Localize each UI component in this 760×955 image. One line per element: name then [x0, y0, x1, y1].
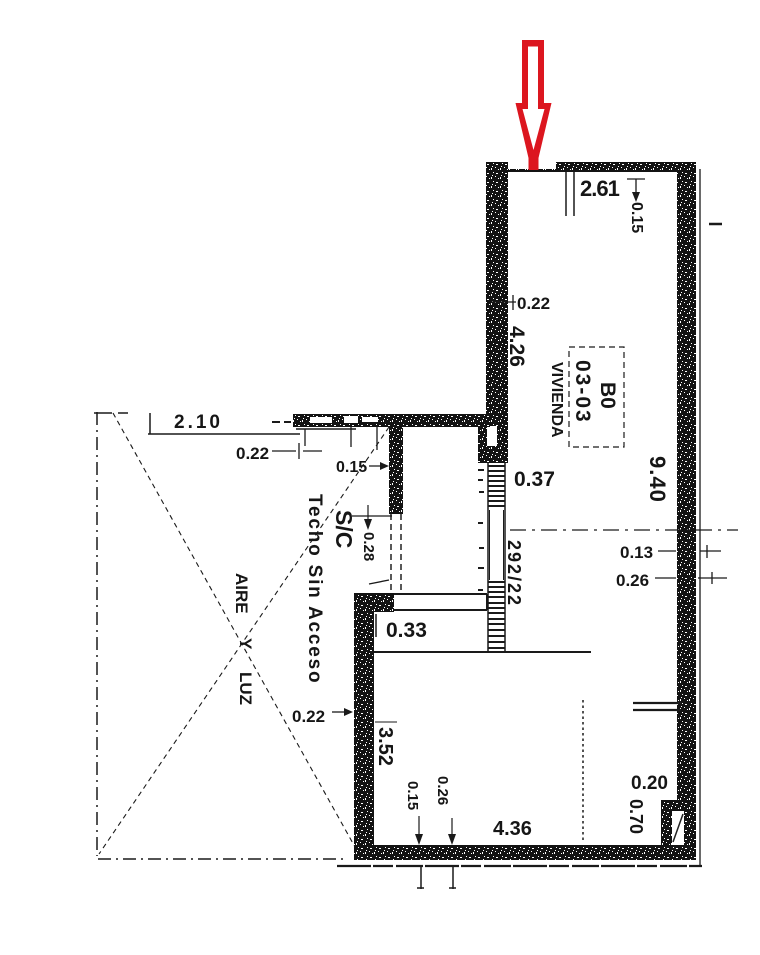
svg-text:2.10: 2.10 — [174, 412, 223, 433]
svg-text:0.28: 0.28 — [360, 532, 377, 561]
svg-text:0.15: 0.15 — [628, 202, 645, 233]
svg-text:0.70: 0.70 — [626, 799, 646, 834]
svg-text:0.26: 0.26 — [434, 776, 451, 805]
svg-text:VIVIENDA: VIVIENDA — [548, 362, 565, 438]
svg-text:0.33: 0.33 — [386, 619, 427, 642]
svg-text:Y: Y — [236, 638, 255, 650]
svg-text:AIRE: AIRE — [232, 573, 251, 614]
svg-text:0.15: 0.15 — [336, 459, 367, 476]
svg-text:3.52: 3.52 — [374, 727, 396, 766]
svg-text:03-03: 03-03 — [571, 360, 594, 424]
svg-text:4.26: 4.26 — [505, 326, 528, 367]
svg-text:0.20: 0.20 — [631, 773, 668, 794]
svg-text:0.22: 0.22 — [292, 707, 325, 726]
svg-text:2.61: 2.61 — [580, 176, 620, 201]
svg-text:0.26: 0.26 — [616, 571, 649, 590]
svg-text:0.37: 0.37 — [514, 468, 555, 491]
svg-text:Techo Sin Acceso: Techo Sin Acceso — [304, 494, 325, 684]
svg-text:292/22: 292/22 — [504, 540, 524, 607]
svg-text:0.13: 0.13 — [620, 543, 653, 562]
svg-text:4.36: 4.36 — [493, 818, 532, 840]
svg-text:9.40: 9.40 — [645, 456, 670, 503]
svg-text:0.22: 0.22 — [517, 294, 550, 313]
svg-text:B0: B0 — [596, 382, 619, 409]
svg-text:0.15: 0.15 — [404, 781, 421, 810]
svg-text:S/C: S/C — [331, 510, 357, 548]
svg-text:0.22: 0.22 — [236, 444, 269, 463]
svg-text:LUZ: LUZ — [236, 672, 255, 705]
